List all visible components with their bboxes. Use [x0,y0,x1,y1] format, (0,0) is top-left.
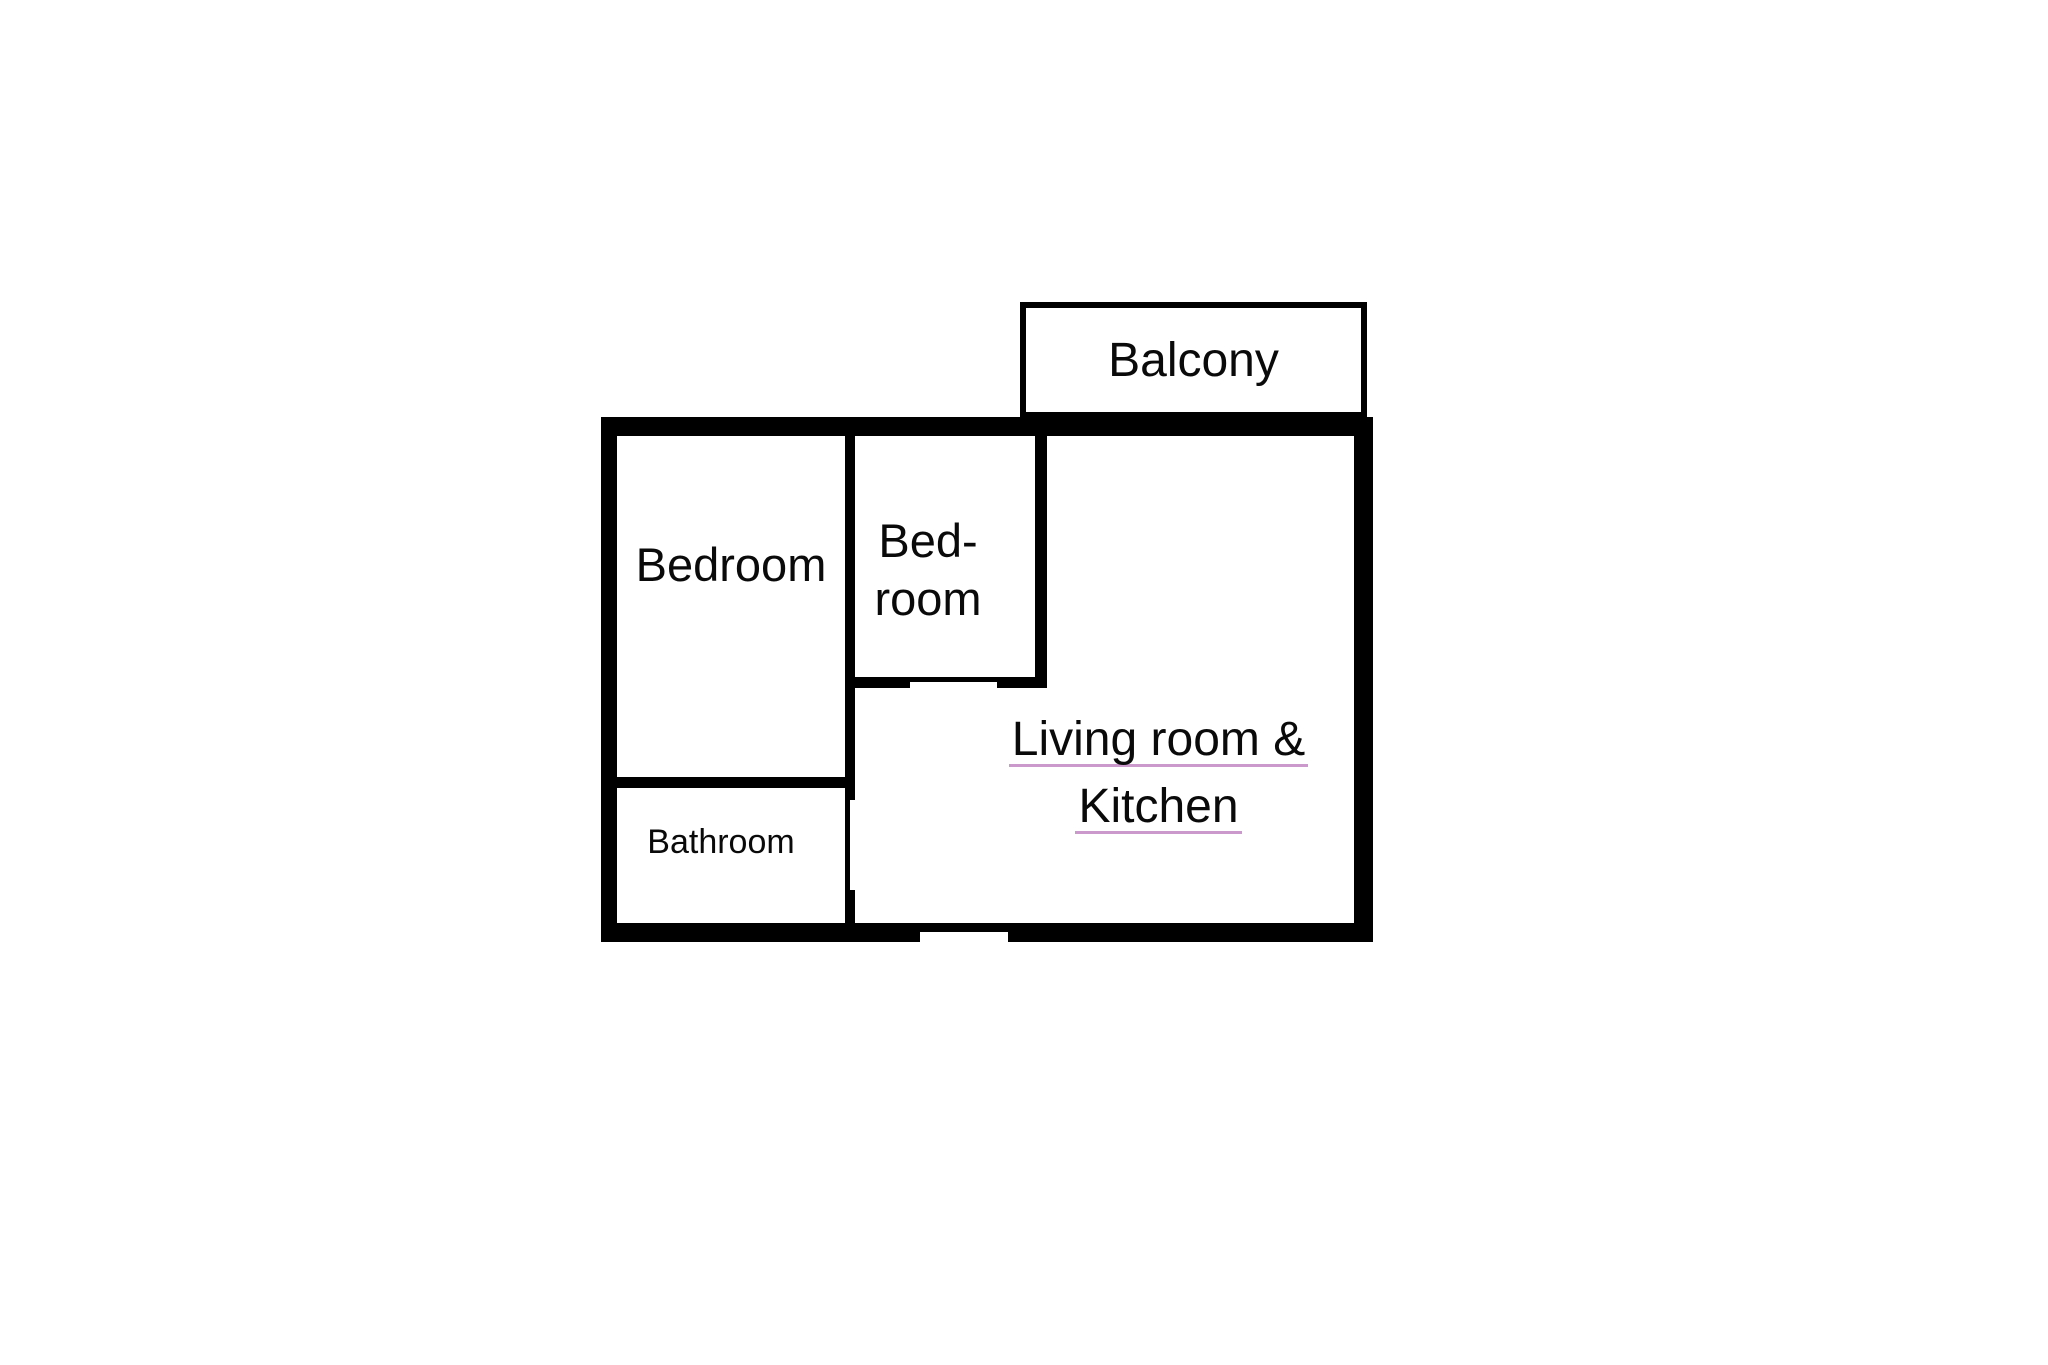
room-label-bedroom-small: Bed- room [838,512,1018,628]
wall-exterior-left [601,417,617,942]
wall-exterior-bottom-left [601,923,920,942]
wall-bathroom-top [617,777,855,788]
door-opening-bathroom [845,800,850,890]
living-kitchen-line2: Kitchen [1008,779,1309,834]
living-kitchen-line1: Living room & [1008,712,1309,767]
wall-bedroom-small-bottom-left [845,677,910,688]
room-label-bedroom-small-line1: Bed- [878,514,977,567]
door-opening-bedroom-small [910,677,997,682]
wall-bedroom-small-bottom-right [997,677,1047,688]
floor-plan: Balcony Bedroom Bed- room Bathroom Livin… [0,0,2048,1365]
room-label-living-kitchen: Living room & Kitchen [1008,712,1309,834]
room-label-bedroom-main: Bedroom [617,540,845,590]
door-opening-entrance [920,923,1008,932]
room-label-bedroom-small-line2: room [874,572,981,625]
wall-exterior-bottom-right [1008,923,1373,942]
wall-exterior-right [1354,417,1373,942]
room-label-balcony: Balcony [1108,333,1279,388]
wall-exterior-top [601,417,1373,436]
wall-bedroom-small-right [1035,436,1047,688]
room-balcony: Balcony [1020,302,1367,418]
room-label-bathroom: Bathroom [617,824,825,860]
wall-interior-vertical-lower [845,890,855,923]
